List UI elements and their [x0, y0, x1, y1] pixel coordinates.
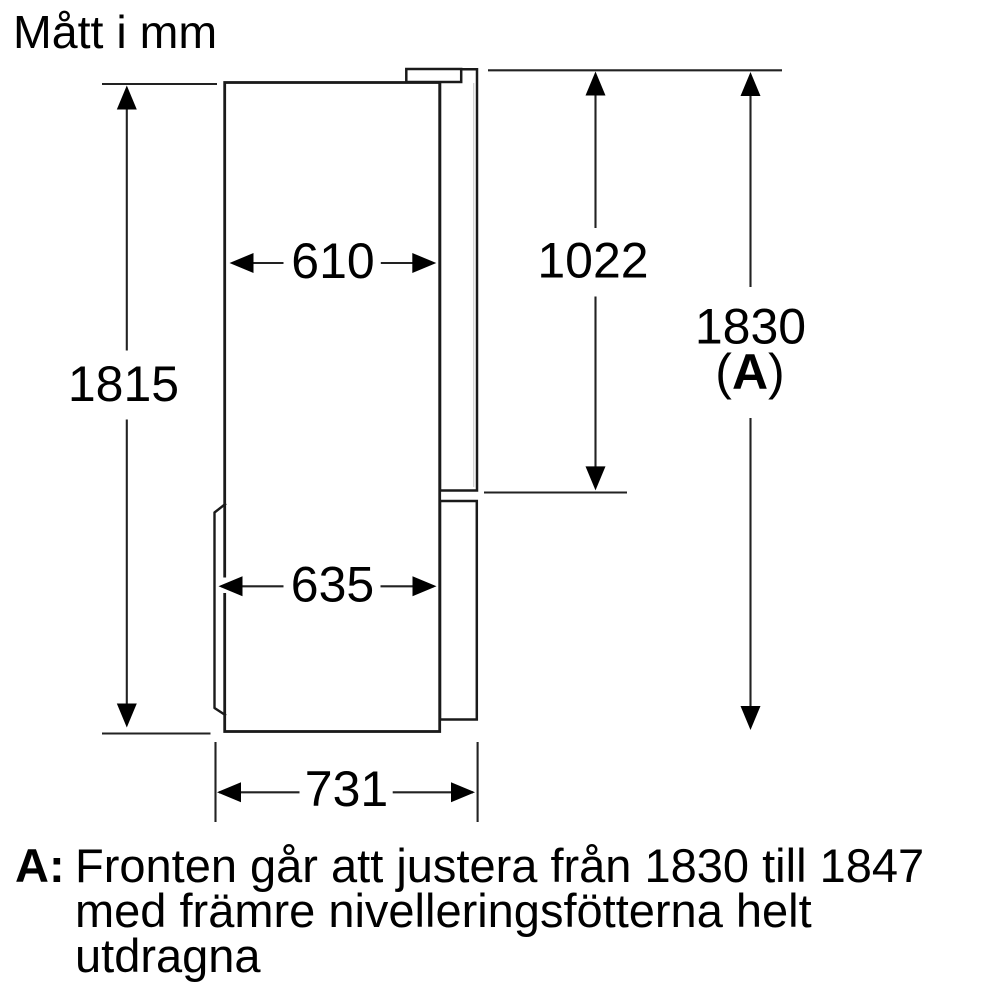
svg-text:(A): (A)	[715, 344, 784, 400]
svg-text:Mått i mm: Mått i mm	[13, 6, 217, 58]
svg-text:1815: 1815	[68, 356, 179, 412]
svg-text:731: 731	[305, 761, 388, 817]
svg-text:utdragna: utdragna	[75, 929, 261, 982]
svg-text:635: 635	[291, 557, 374, 613]
svg-text:1022: 1022	[537, 233, 648, 289]
svg-text:610: 610	[291, 233, 374, 289]
